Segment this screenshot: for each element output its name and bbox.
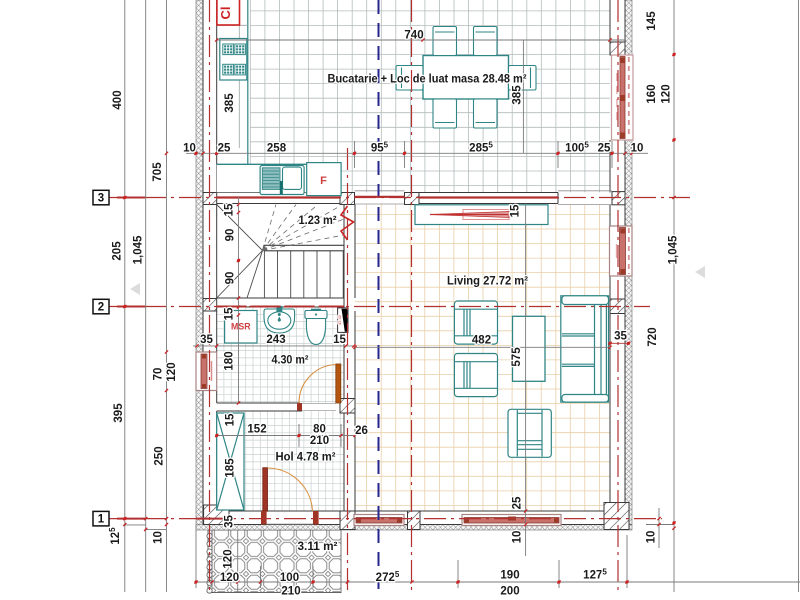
- svg-text:2: 2: [98, 302, 104, 314]
- svg-text:35: 35: [614, 331, 627, 343]
- svg-text:1: 1: [98, 514, 105, 526]
- svg-text:15: 15: [510, 204, 522, 217]
- svg-text:210: 210: [281, 586, 300, 598]
- svg-text:400: 400: [112, 90, 124, 109]
- svg-text:740: 740: [404, 30, 423, 42]
- svg-text:3.11 m²: 3.11 m²: [298, 539, 338, 553]
- svg-text:190: 190: [500, 570, 519, 582]
- svg-text:120: 120: [166, 362, 178, 381]
- svg-text:35: 35: [200, 334, 213, 346]
- svg-text:Hol 4.78 m²: Hol 4.78 m²: [276, 450, 336, 464]
- svg-text:90: 90: [225, 229, 237, 242]
- svg-text:15: 15: [225, 413, 237, 426]
- svg-text:395: 395: [113, 403, 125, 423]
- svg-text:10: 10: [153, 531, 165, 544]
- svg-text:90: 90: [225, 272, 237, 285]
- svg-text:MSR: MSR: [231, 322, 251, 332]
- svg-text:258: 258: [267, 143, 287, 155]
- svg-text:205: 205: [112, 241, 124, 261]
- svg-text:243: 243: [266, 334, 285, 346]
- svg-text:1,045: 1,045: [133, 235, 145, 264]
- svg-text:3: 3: [98, 193, 104, 205]
- svg-text:4.30 m²: 4.30 m²: [272, 353, 309, 367]
- svg-text:15: 15: [224, 307, 236, 320]
- svg-text:100: 100: [280, 572, 299, 584]
- svg-text:10: 10: [183, 143, 196, 155]
- svg-text:200: 200: [500, 586, 519, 598]
- svg-text:25: 25: [218, 143, 231, 155]
- svg-text:720: 720: [647, 327, 659, 346]
- svg-text:F: F: [320, 175, 327, 187]
- svg-text:185: 185: [225, 458, 237, 478]
- svg-text:385: 385: [512, 85, 524, 105]
- svg-text:Living 27.72 m²: Living 27.72 m²: [447, 274, 528, 288]
- svg-text:385: 385: [224, 93, 236, 113]
- svg-text:250: 250: [154, 446, 166, 465]
- svg-text:25: 25: [598, 143, 611, 155]
- svg-text:42.42: 42.42: [337, 314, 342, 325]
- svg-text:120: 120: [220, 572, 239, 584]
- svg-text:10: 10: [646, 531, 658, 544]
- svg-text:152: 152: [247, 424, 266, 436]
- svg-text:1.23 m²: 1.23 m²: [299, 213, 337, 227]
- svg-text:120: 120: [223, 549, 235, 568]
- svg-text:Cl: Cl: [218, 7, 233, 20]
- svg-text:80: 80: [313, 424, 326, 436]
- svg-text:15: 15: [224, 203, 236, 216]
- svg-text:482: 482: [472, 335, 491, 347]
- svg-text:26: 26: [355, 425, 368, 437]
- svg-text:10: 10: [512, 531, 524, 544]
- svg-text:210: 210: [310, 435, 329, 447]
- svg-text:70: 70: [153, 368, 165, 381]
- svg-text:160: 160: [646, 84, 658, 103]
- svg-text:25: 25: [512, 496, 524, 509]
- svg-text:1,045: 1,045: [668, 235, 680, 264]
- svg-text:180: 180: [224, 351, 236, 370]
- svg-text:120: 120: [661, 84, 673, 103]
- svg-text:10: 10: [631, 143, 644, 155]
- svg-text:Bucatarie + Loc de luat masa 2: Bucatarie + Loc de luat masa 28.48 m²: [328, 72, 527, 86]
- svg-text:705: 705: [152, 162, 164, 182]
- svg-text:575: 575: [511, 347, 523, 367]
- svg-text:145: 145: [646, 11, 658, 31]
- svg-text:35: 35: [224, 515, 236, 528]
- svg-text:15: 15: [333, 334, 346, 346]
